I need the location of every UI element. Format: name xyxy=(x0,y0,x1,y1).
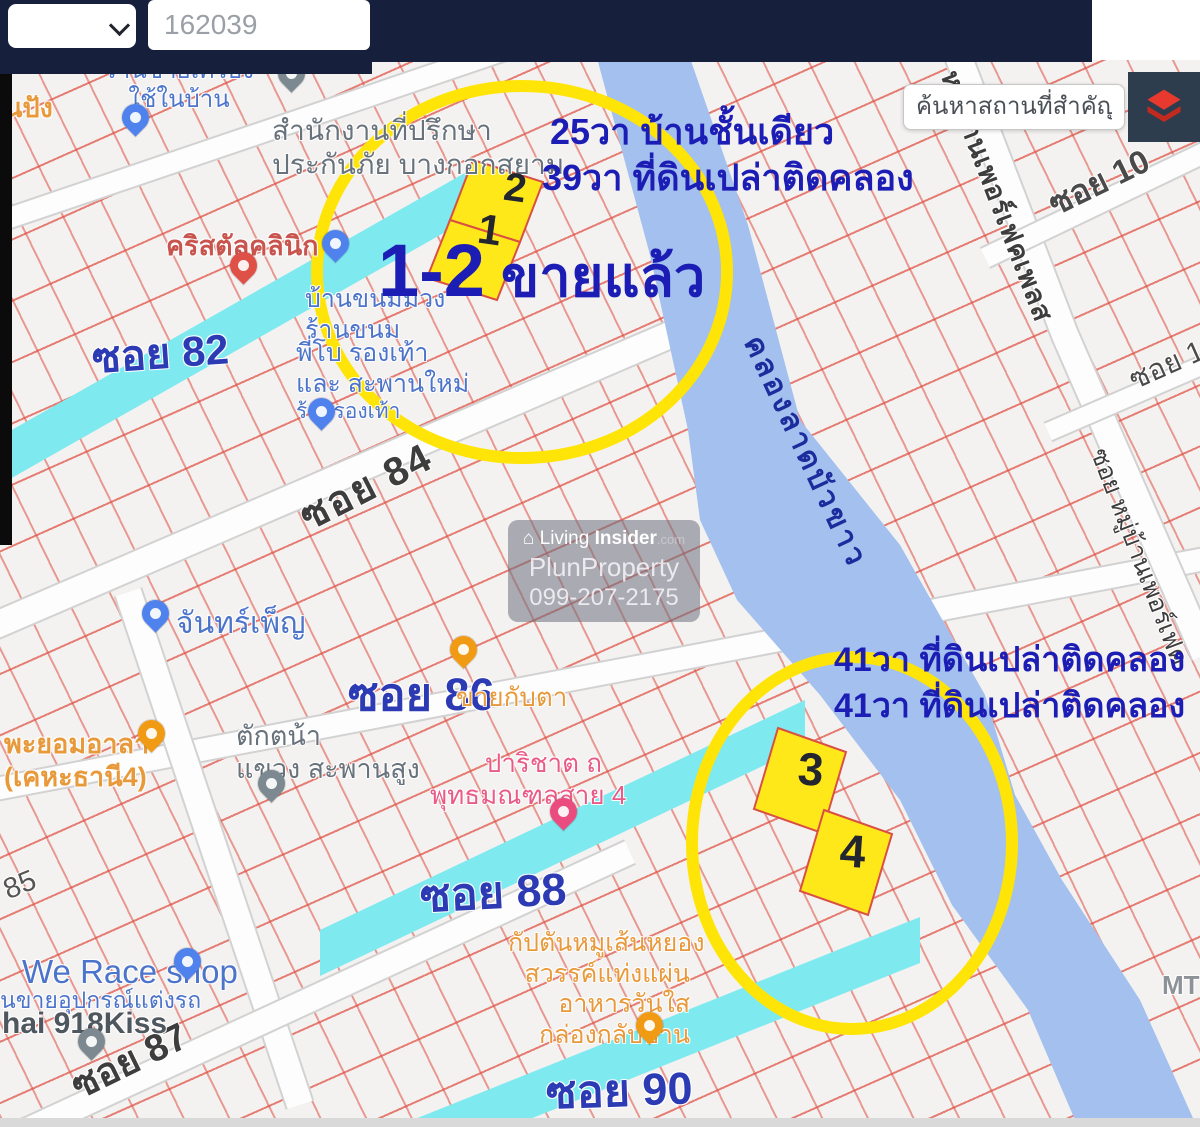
chevron-down-icon xyxy=(109,15,130,36)
bottom-edge-strip xyxy=(0,1118,1200,1127)
left-edge-strip xyxy=(0,28,12,545)
annotation-sold: 1-2 ขายแล้ว xyxy=(378,226,705,316)
watermark-brand: ⌂ Living Insider.com xyxy=(510,528,698,550)
annotation-right-line2: 41วา ที่ดินเปล่าติดคลอง xyxy=(834,686,1185,727)
poi-label-chanpen: จันทร์เพ็ญ xyxy=(176,606,306,643)
poi-label-parichat: ปาริชาต ถ พุทธมณฑลสาย 4 xyxy=(430,748,602,811)
sold-numbers: 1-2 xyxy=(378,226,485,316)
map-search-input[interactable] xyxy=(903,84,1125,130)
top-navbar-extension xyxy=(0,62,372,74)
plot-number-3: 3 xyxy=(796,741,825,797)
watermark: ⌂ Living Insider.com PlunProperty 099-20… xyxy=(508,520,700,622)
house-icon: ⌂ xyxy=(523,528,534,549)
poi-label-captain: กัปตันหมูเส้นหยอง สวรรค์แท่งแผ่น อาหารวั… xyxy=(508,928,690,1050)
annotation-top-line2: 39วา ที่ดินเปล่าติดคลอง xyxy=(542,156,914,200)
layers-button[interactable] xyxy=(1128,72,1200,142)
poi-label-phayom: พะยอมอาลา (เคหะธานี4) xyxy=(4,728,149,794)
street-label-mt: MT xyxy=(1162,970,1200,1002)
region-dropdown[interactable] xyxy=(8,4,136,48)
watermark-company: PlunProperty xyxy=(510,552,698,583)
annotation-top-line1: 25วา บ้านชั้นเดียว xyxy=(550,110,834,154)
plot-number-4: 4 xyxy=(838,823,867,879)
annotation-right-line1: 41วา ที่ดินเปล่าติดคลอง xyxy=(834,640,1185,681)
watermark-phone: 099-207-2175 xyxy=(510,584,698,612)
street-label-soi90: ซอย 90 xyxy=(545,1061,693,1121)
listing-id-input[interactable] xyxy=(148,0,370,50)
street-label-soi82: ซอย 82 xyxy=(90,323,230,384)
map-viewport[interactable]: ซอย 82 ซอย 84 85 ซอย 86 ซอย 87 ซอย 88 ซอ… xyxy=(0,0,1200,1127)
layers-icon xyxy=(1142,85,1186,129)
sold-text: ขายแล้ว xyxy=(501,243,705,311)
street-label-soi88: ซอย 88 xyxy=(419,862,568,924)
poi-label-kabta: ขายกับตา xyxy=(456,682,567,714)
